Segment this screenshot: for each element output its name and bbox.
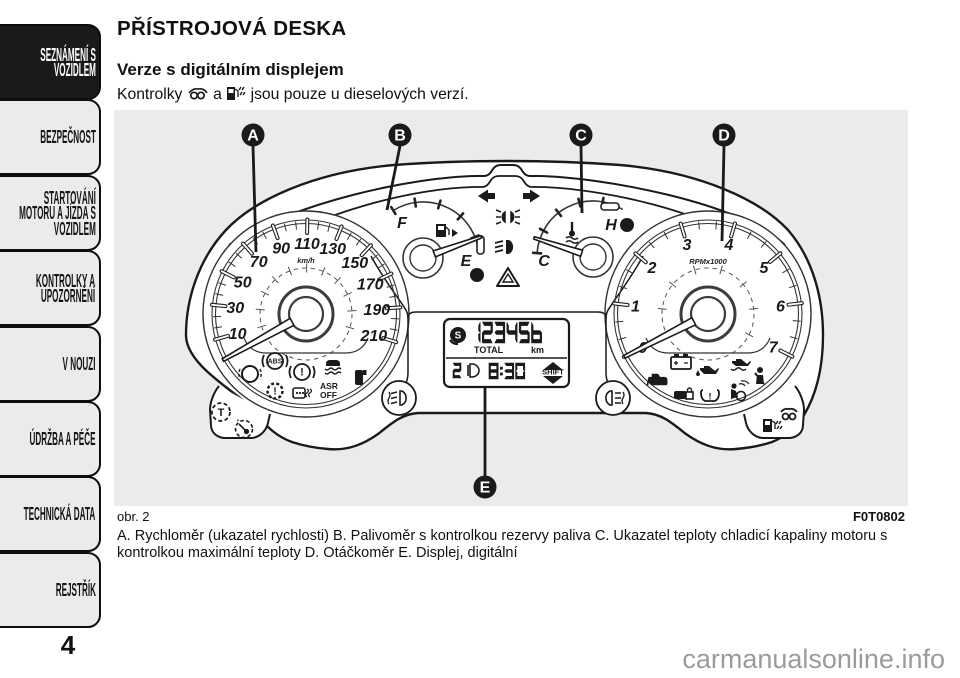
svg-text:190: 190 (363, 302, 390, 319)
svg-text:90: 90 (272, 240, 290, 257)
svg-text:5: 5 (759, 260, 769, 277)
svg-text:1: 1 (631, 299, 640, 316)
svg-text:3: 3 (682, 237, 691, 254)
svg-text:S: S (455, 331, 462, 342)
svg-text:150: 150 (341, 255, 368, 272)
svg-text:!: ! (273, 386, 276, 397)
svg-text:2: 2 (646, 260, 656, 277)
svg-text:210: 210 (359, 328, 387, 345)
svg-text:10: 10 (229, 326, 247, 343)
svg-text:OFF: OFF (320, 390, 337, 400)
svg-text:C: C (538, 253, 550, 270)
svg-text:A: A (247, 128, 259, 145)
svg-text:E: E (480, 480, 491, 497)
svg-text:6: 6 (776, 298, 785, 315)
svg-text:50: 50 (234, 275, 252, 292)
svg-text:4: 4 (723, 237, 733, 254)
svg-text:170: 170 (357, 276, 384, 293)
svg-text:ABS: ABS (268, 359, 283, 366)
svg-text:H: H (605, 217, 617, 234)
svg-text:110: 110 (294, 236, 320, 253)
svg-text:70: 70 (250, 254, 268, 271)
svg-text:C: C (575, 128, 587, 145)
svg-text:B: B (394, 128, 406, 145)
svg-text:F: F (397, 215, 408, 232)
svg-text:30: 30 (226, 300, 244, 317)
svg-text:!: ! (300, 366, 304, 378)
svg-text:km: km (531, 345, 544, 355)
svg-text:!: ! (709, 392, 712, 402)
svg-text:E: E (461, 253, 473, 270)
svg-text:T: T (218, 407, 225, 419)
svg-text:SHIFT: SHIFT (542, 368, 564, 377)
svg-text:7: 7 (769, 340, 779, 357)
svg-text:D: D (718, 128, 730, 145)
svg-text:TOTAL: TOTAL (474, 345, 504, 355)
svg-text:RPMx1000: RPMx1000 (689, 257, 727, 266)
